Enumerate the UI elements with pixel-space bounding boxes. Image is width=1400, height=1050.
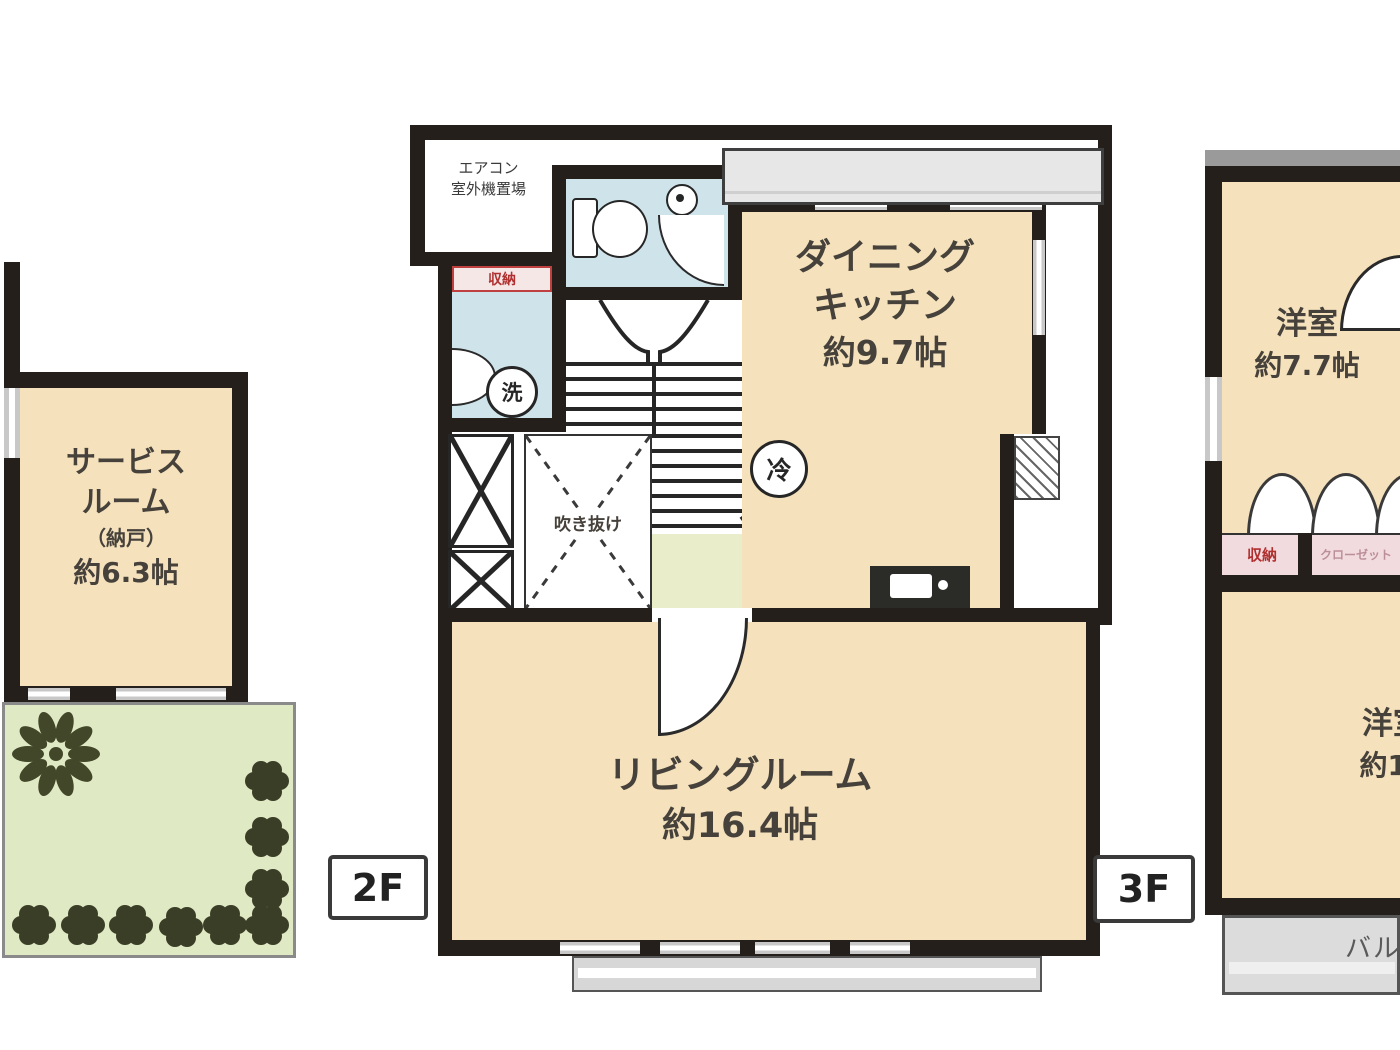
kitchen-faucet — [938, 580, 948, 590]
floorplan-canvas: サービス ルーム （納戸） 約6.3帖 — [0, 0, 1400, 1050]
bedroom2-label-size: 約10 — [1318, 746, 1400, 786]
stairs-treads-lower — [652, 434, 742, 532]
dk-right-window — [1033, 240, 1045, 335]
right-wall-top — [1205, 166, 1400, 182]
aircon-label-line2: 室外機置場 — [425, 179, 552, 200]
kitchen-sink — [890, 574, 932, 598]
closet-strip-divider — [1298, 533, 1312, 575]
closet-left-label: 収納 — [1228, 544, 1296, 565]
fridge-circle: 冷 — [750, 440, 808, 498]
service-room-window-2 — [116, 688, 226, 700]
storage-strip: 収納 — [452, 266, 552, 292]
top-balcony — [722, 148, 1104, 205]
service-room-wall-right — [232, 372, 248, 702]
mid-wall-left-upper — [410, 125, 425, 266]
bottom-balcony — [572, 956, 1042, 992]
living-wall-top — [438, 608, 1112, 622]
closet-right-label: クローゼット — [1312, 546, 1400, 563]
mid-wall-top — [410, 125, 1112, 140]
service-room-window-1 — [28, 688, 70, 700]
toilet-wall-bottom — [552, 287, 742, 300]
closet-x-icon — [451, 437, 511, 545]
dk-label-line2: キッチン — [757, 282, 1013, 330]
right-wall-left — [1205, 166, 1222, 915]
dk-label-line1: ダイニング — [757, 234, 1013, 282]
terrace-garden — [2, 702, 296, 958]
living-window-2 — [660, 942, 740, 954]
bottom-balcony-inner-band — [578, 968, 1036, 978]
bedroom2-label: 洋室 約10 — [1318, 702, 1400, 786]
right-wall-bottom — [1205, 898, 1400, 915]
aircon-label-line1: エアコン — [425, 158, 552, 179]
service-room-label-line2: ルーム — [22, 483, 230, 523]
bedroom1-label-size: 約7.7帖 — [1226, 346, 1388, 386]
left-wall-fragment-upper — [4, 262, 20, 380]
fridge-circle-label: 冷 — [766, 451, 791, 487]
aircon-label: エアコン 室外機置場 — [425, 158, 552, 200]
toilet-washbasin-dot — [676, 194, 684, 202]
stairs-treads-upper — [566, 362, 742, 434]
storage-label: 収納 — [488, 269, 516, 289]
service-room-label: サービス ルーム （納戸） 約6.3帖 — [22, 443, 230, 593]
void-area: 吹き抜け — [524, 434, 652, 610]
right-balcony-label: バルコニー — [1345, 928, 1400, 965]
left-wall-fragment-lower — [4, 458, 20, 702]
service-room-label-line1: サービス — [22, 443, 230, 483]
right-wall-mid — [1205, 575, 1400, 592]
bedroom1-label-name: 洋室 — [1226, 302, 1388, 346]
living-window-3 — [755, 942, 830, 954]
floor-label-3f-text: 3F — [1118, 867, 1170, 911]
service-room-label-line3: （納戸） — [22, 523, 230, 553]
toilet-bowl — [592, 200, 648, 258]
stairs-divider — [652, 362, 656, 434]
left-wall-window — [4, 380, 20, 458]
terrace-plants — [5, 705, 293, 955]
floor-label-2f: 2F — [328, 855, 428, 920]
closet-x-icon — [451, 553, 511, 609]
laundry-circle-label: 洗 — [502, 377, 523, 407]
top-balcony-inner-line — [725, 191, 1101, 194]
void-label: 吹き抜け — [526, 510, 650, 535]
toilet-wall-top — [552, 165, 742, 179]
floor-label-2f-text: 2F — [352, 866, 404, 910]
closet-lower — [448, 550, 514, 612]
right-left-window — [1205, 377, 1222, 461]
dk-label-size: 約9.7帖 — [757, 330, 1013, 376]
kitchen-counter — [870, 566, 970, 608]
bedroom2-label-name: 洋室 — [1318, 702, 1400, 746]
living-window-1 — [560, 942, 640, 954]
living-room-label: リビングルーム 約16.4帖 — [540, 748, 940, 850]
service-room-wall-top — [4, 372, 248, 388]
dk-wall-right-lower — [1000, 420, 1014, 610]
utility-hatch-box — [1014, 436, 1060, 500]
dining-kitchen-label: ダイニング キッチン 約9.7帖 — [757, 234, 1013, 376]
laundry-circle: 洗 — [486, 366, 538, 418]
living-window-4 — [850, 942, 910, 954]
living-label-size: 約16.4帖 — [540, 802, 940, 850]
closet-upper — [448, 434, 514, 548]
bedroom1-label: 洋室 約7.7帖 — [1226, 302, 1388, 386]
living-label-name: リビングルーム — [540, 748, 940, 802]
service-room-label-line4: 約6.3帖 — [22, 553, 230, 593]
floor-label-3f: 3F — [1093, 855, 1195, 923]
flower-icon — [12, 710, 100, 799]
stairs-upper-curve — [588, 300, 720, 364]
